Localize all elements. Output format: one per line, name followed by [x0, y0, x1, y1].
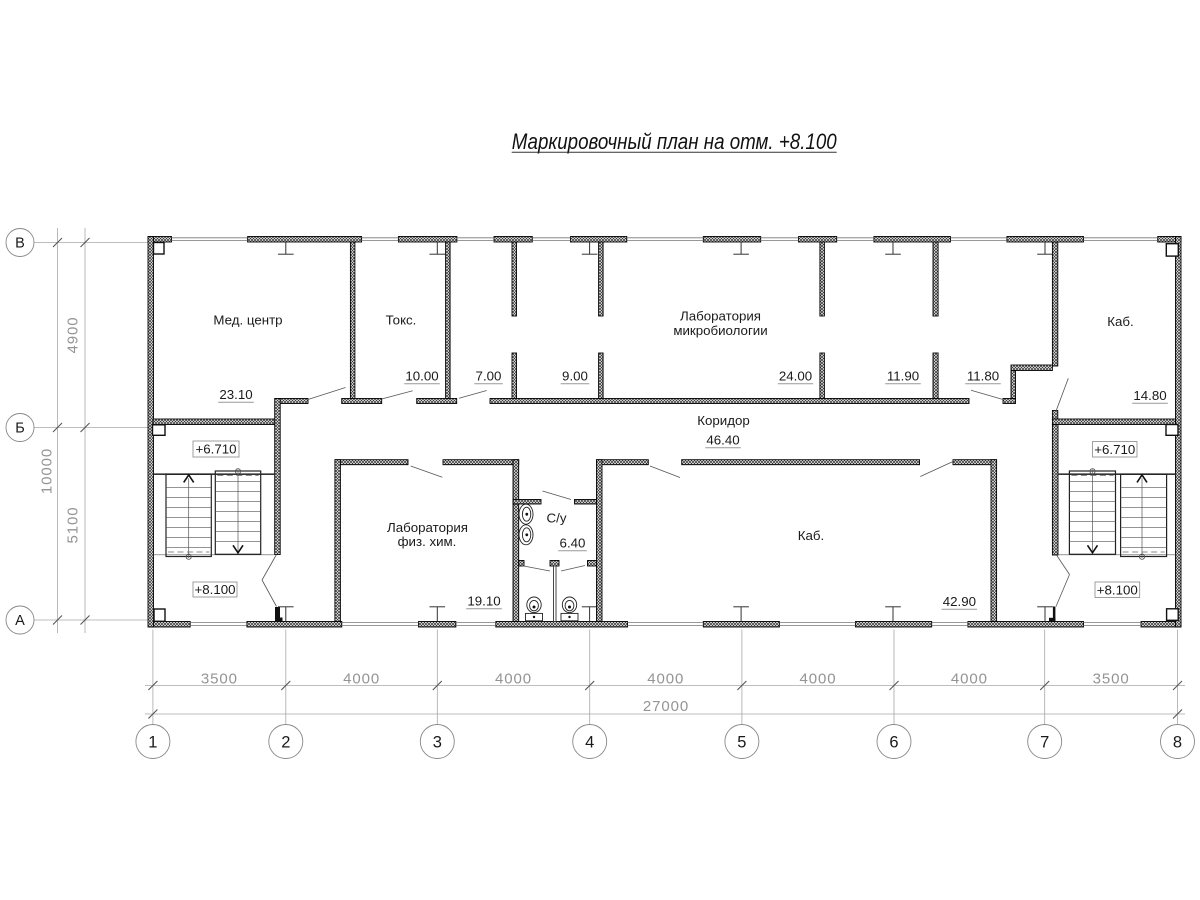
svg-text:4000: 4000 [495, 671, 532, 688]
svg-text:46.40: 46.40 [706, 433, 739, 448]
svg-text:3500: 3500 [201, 671, 238, 688]
svg-text:19.10: 19.10 [467, 594, 500, 609]
svg-text:7: 7 [1040, 734, 1049, 752]
svg-text:4: 4 [585, 734, 594, 752]
svg-text:3500: 3500 [1093, 671, 1130, 688]
svg-text:4000: 4000 [951, 671, 988, 688]
svg-text:11.90: 11.90 [887, 369, 919, 384]
svg-text:Мед. центр: Мед. центр [213, 313, 282, 328]
svg-text:27000: 27000 [643, 698, 689, 715]
svg-text:Каб.: Каб. [1107, 314, 1133, 329]
svg-text:Каб.: Каб. [798, 528, 824, 543]
svg-text:+8.100: +8.100 [194, 582, 235, 597]
svg-text:6.40: 6.40 [560, 536, 586, 551]
svg-text:В: В [15, 236, 25, 252]
svg-text:9.00: 9.00 [562, 369, 588, 384]
svg-text:Маркировочный план на отм. +8.: Маркировочный план на отм. +8.100 [512, 129, 838, 154]
svg-text:+8.100: +8.100 [1097, 583, 1138, 598]
svg-text:23.10: 23.10 [219, 387, 252, 402]
svg-text:10000: 10000 [39, 448, 56, 494]
svg-text:А: А [15, 613, 25, 629]
svg-text:11.80: 11.80 [967, 369, 999, 384]
svg-text:10.00: 10.00 [405, 369, 438, 384]
svg-text:микробиологии: микробиологии [673, 323, 767, 338]
svg-text:2: 2 [281, 734, 290, 752]
svg-text:Лаборатория: Лаборатория [387, 520, 468, 535]
svg-text:42.90: 42.90 [943, 594, 976, 609]
svg-text:8: 8 [1173, 734, 1182, 752]
svg-text:Б: Б [15, 421, 25, 437]
svg-text:4000: 4000 [647, 671, 684, 688]
svg-text:Коридор: Коридор [697, 413, 750, 428]
svg-text:4900: 4900 [65, 317, 82, 354]
svg-text:7.00: 7.00 [476, 369, 502, 384]
svg-text:5: 5 [737, 734, 746, 752]
svg-text:3: 3 [433, 734, 442, 752]
svg-text:4000: 4000 [343, 671, 380, 688]
svg-text:6: 6 [889, 734, 898, 752]
svg-text:4000: 4000 [800, 671, 837, 688]
svg-text:Лаборатория: Лаборатория [680, 309, 761, 324]
svg-text:5100: 5100 [65, 507, 82, 544]
svg-text:физ. хим.: физ. хим. [398, 534, 457, 549]
svg-text:24.00: 24.00 [779, 369, 812, 384]
svg-text:1: 1 [148, 734, 157, 752]
svg-text:+6.710: +6.710 [195, 442, 236, 457]
svg-text:+6.710: +6.710 [1094, 442, 1135, 457]
svg-text:14.80: 14.80 [1133, 388, 1166, 403]
svg-text:С/у: С/у [547, 511, 567, 526]
svg-text:Токс.: Токс. [386, 313, 417, 328]
